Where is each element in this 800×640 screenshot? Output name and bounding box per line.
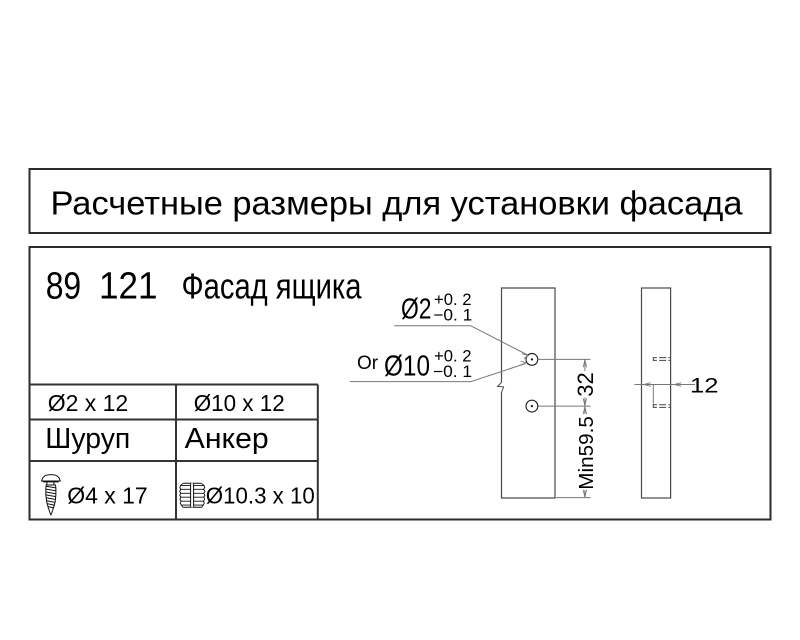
svg-text:Ø2: Ø2 [401,293,432,325]
svg-text:Or: Or [357,353,379,374]
svg-text:Ø10 x 12: Ø10 x 12 [194,390,285,416]
svg-text:Min59.5: Min59.5 [575,416,598,490]
svg-text:Фасад ящика: Фасад ящика [182,266,363,307]
svg-text:Ø10.3 x 10: Ø10.3 x 10 [206,483,315,509]
svg-text:32: 32 [573,372,598,396]
svg-text:12: 12 [690,374,719,398]
svg-text:Шуруп: Шуруп [45,423,130,455]
svg-text:Ø10: Ø10 [384,350,430,382]
svg-text:Расчетные размеры для установк: Расчетные размеры для установки фасада [51,185,744,222]
svg-text:Анкер: Анкер [185,423,269,455]
svg-text:121: 121 [99,266,158,308]
svg-text:89: 89 [46,266,81,308]
svg-text:−0. 1: −0. 1 [433,307,472,325]
svg-text:Ø4 x 17: Ø4 x 17 [67,483,148,509]
svg-text:−0. 1: −0. 1 [433,363,472,381]
svg-text:Ø2 x 12: Ø2 x 12 [48,390,129,416]
